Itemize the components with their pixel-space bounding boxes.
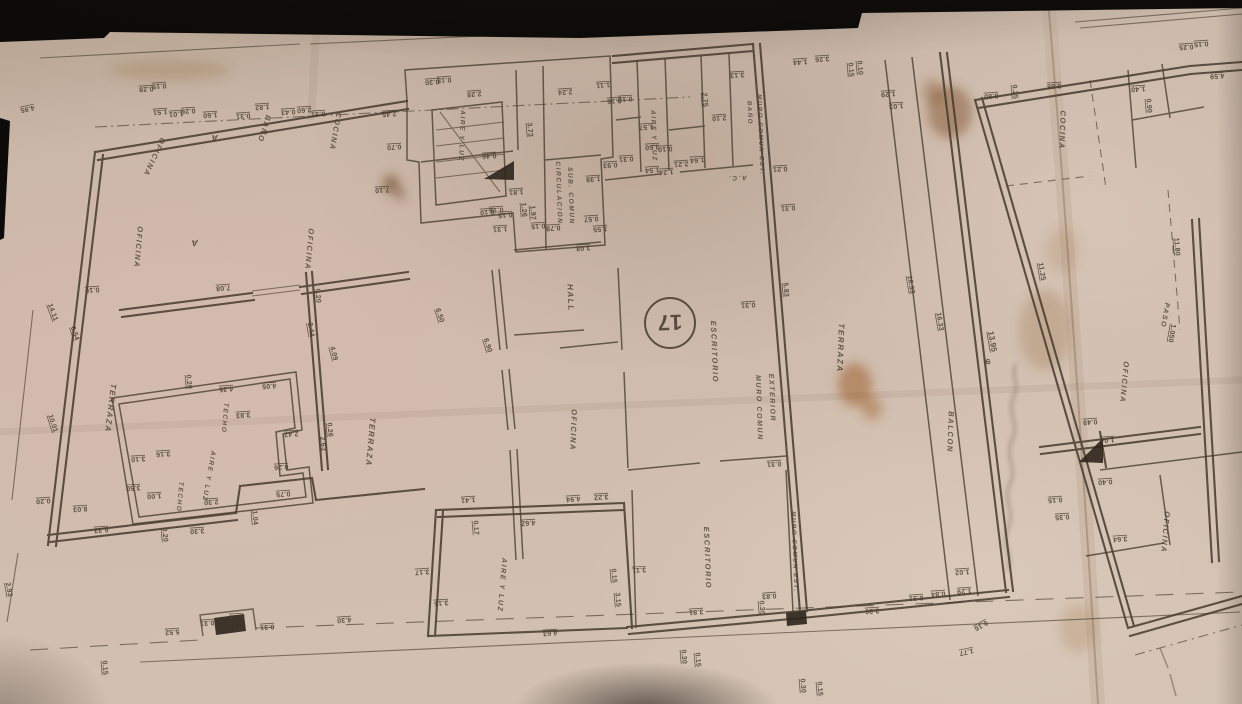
dimension-label: 1.77 — [959, 647, 975, 657]
dimension-label: 1.64 — [690, 156, 705, 164]
dimension-label: 0.17 — [471, 520, 479, 535]
dimension-label: 0.30 — [757, 600, 765, 615]
dimension-label: 2.63 — [318, 436, 326, 451]
dimension-label: 0.93 — [603, 161, 618, 169]
dimension-label: 0.25 — [1179, 43, 1194, 51]
dimension-label: 2.21 — [674, 160, 689, 168]
dimension-label: 0.15 — [693, 652, 701, 667]
dimension-label: 0.90 — [1144, 98, 1152, 113]
dimension-label: 0.16 — [973, 619, 989, 632]
dimension-label: 4.63 — [543, 629, 558, 637]
room-label: A — [190, 238, 199, 248]
dimension-label: 3.44 — [306, 322, 315, 337]
plan-number-badge: 17 — [645, 298, 695, 348]
dimension-label: 0.25 — [1010, 84, 1018, 99]
dimension-label: 14.11 — [46, 303, 59, 322]
dimension-label: 5.83 — [781, 282, 789, 297]
dimension-label: 0.31 — [260, 623, 275, 631]
dimension-label: 3.15 — [613, 592, 621, 607]
room-label: PASO — [1159, 302, 1170, 329]
dimension-label: 0.15 — [609, 568, 617, 583]
room-label: MURO COMUN — [754, 375, 763, 441]
dimension-label: 0.11 — [229, 613, 244, 621]
dimension-label: 6.54 — [69, 326, 80, 342]
dimension-label: 3.10 — [131, 455, 146, 463]
dimension-label: 1.04 — [1100, 436, 1115, 444]
dimension-label: 0.31 — [767, 460, 782, 468]
dimension-label: 16.33 — [905, 275, 915, 294]
dimension-label: 0.26 — [181, 107, 196, 115]
dimension-label: 0.20 — [160, 527, 168, 542]
room-label: ESCRITORIO — [702, 527, 713, 590]
dimension-label: 0.31 — [200, 619, 215, 627]
dimension-label: 13.95 — [986, 330, 999, 353]
dimension-label: 3.50 — [126, 484, 141, 492]
room-label: AIRE Y LUZ — [496, 557, 508, 613]
dimension-label: 0.31 — [619, 155, 634, 163]
plan-number: 17 — [657, 310, 682, 336]
dimension-label: 0.46 — [482, 152, 497, 160]
room-label: COCINA — [328, 111, 344, 151]
dimension-label: 0.20 — [184, 374, 192, 389]
dimension-label: 6.50 — [434, 308, 445, 324]
dimension-label: 0.49 — [1083, 418, 1098, 426]
dimension-label: 1.40 — [1131, 85, 1146, 93]
dimension-label: 1.57 — [639, 123, 654, 131]
dimension-label: 0.20 — [313, 288, 321, 303]
dimension-label: 4.30 — [337, 616, 352, 624]
room-label: BALCON — [945, 411, 955, 453]
dimension-label: 3.81 — [689, 608, 704, 616]
dimension-label: 0.15 — [1048, 496, 1063, 504]
door-sill-hatch-icon — [200, 161, 1103, 636]
room-label: OFICINA — [303, 228, 316, 271]
dimension-label: 0.28 — [139, 85, 154, 93]
dimension-label: 0.30 — [679, 649, 687, 664]
room-label: OFICINA — [1159, 511, 1172, 554]
dimension-label: 0.10 — [855, 60, 863, 75]
room-label: ESCRITORIO — [709, 321, 720, 384]
dimension-label: 1.02 — [955, 568, 970, 576]
dimension-label: 4.95 — [20, 104, 36, 114]
dimension-label: 0.15 — [152, 82, 167, 90]
room-labels: OFICINAABAÑOCOCINAOFICINAAOFICINAAIRE Y … — [103, 94, 1172, 612]
dimension-label: 3.17 — [415, 568, 430, 576]
dimension-label: 0.78 — [546, 224, 561, 232]
dimension-label: 0.80 — [984, 92, 999, 100]
dimension-label: φ — [984, 358, 994, 365]
room-label: A — [210, 133, 219, 143]
dimension-label: 1.26 — [519, 202, 527, 217]
room-label: BAÑO — [746, 101, 754, 125]
room-label: AIRE Y LUZ — [201, 449, 217, 502]
dimension-label: 1.55 — [593, 225, 608, 233]
dimension-label: 2.45 — [382, 110, 397, 118]
dimension-label: 1.82 — [255, 103, 270, 111]
dimension-label: 0.31 — [311, 110, 326, 118]
dimension-label: 1.050 — [1166, 324, 1176, 343]
dimension-label: 0.26 — [325, 422, 333, 437]
dimension-label: 2.60 — [297, 106, 312, 114]
dimension-label: 3.11 — [632, 566, 647, 574]
room-label: OFICINA — [568, 409, 578, 451]
dimension-label: 0.70 — [387, 143, 402, 151]
dimension-label: 2.93 — [4, 582, 13, 597]
dimension-label: 0.35 — [1055, 513, 1070, 521]
dimension-label: 7.08 — [216, 284, 231, 292]
dimension-label: 1.04 — [250, 510, 258, 525]
dimension-label: 4.62 — [521, 519, 536, 527]
dimension-label: 3.15 — [434, 599, 449, 607]
dimension-label: 1.29 — [957, 587, 972, 595]
dimension-label: 7.10 — [375, 186, 390, 194]
dimension-label: 5.52 — [165, 628, 180, 636]
dimension-label: 4.05 — [262, 382, 277, 390]
room-label: CIRCULACION — [554, 161, 563, 224]
dimension-label: 0.83 — [762, 592, 777, 600]
right-wing-walls — [975, 62, 1242, 636]
dimension-label: 1.11 — [596, 81, 611, 89]
dimension-label: 0.31 — [781, 204, 796, 212]
dimension-label: 0.18 — [437, 76, 452, 84]
dimension-label: 3.08 — [576, 244, 591, 252]
dimension-label: 3.88 — [1047, 82, 1062, 90]
dimension-label: 3.13 — [730, 71, 745, 79]
room-label: HALL — [566, 284, 576, 312]
floor-plan-drawing: 17 OFICINAABAÑOCOCINAOFICINAAOFICINAAIRE… — [0, 0, 1242, 704]
dimension-label: 6.33 — [94, 526, 109, 534]
room-label: AIRE Y LUZ — [457, 109, 466, 162]
dimension-label: 2.42 — [284, 430, 299, 438]
dimension-label: 0.43 — [281, 108, 296, 116]
dimension-label: 11.25 — [1036, 262, 1046, 281]
dimension-label: 1.97 — [528, 205, 536, 220]
dimension-label: 0.40 — [1098, 478, 1113, 486]
dimension-label: 0.31 — [741, 301, 756, 309]
dimension-label: 0.57 — [584, 215, 599, 223]
dimension-label: 0.30 — [798, 678, 806, 693]
stair-core-walls — [405, 54, 753, 252]
dimension-label: 0.15 — [100, 660, 108, 675]
room-label: TERRAZA — [364, 417, 377, 467]
dimension-label: 2.75 — [700, 92, 708, 107]
dimension-label: 0.15 — [815, 681, 823, 696]
dimension-label: 4.59 — [1210, 72, 1225, 80]
dimension-label: 2.10 — [712, 114, 727, 122]
dimension-label: 0.20 — [36, 497, 51, 505]
dimension-label: 3.22 — [594, 493, 609, 501]
dimension-label: 2.30 — [204, 498, 219, 506]
room-label: SUB. COMUN — [566, 167, 575, 225]
dimension-label: 1.03 — [889, 102, 904, 110]
dimension-label: 3.73 — [525, 122, 533, 137]
room-label: TERRAZA — [835, 323, 846, 373]
dimension-label: 1.24 — [659, 168, 674, 176]
dimension-label: 4.09 — [328, 346, 338, 362]
dimension-label: 0.31 — [236, 112, 251, 120]
dimension-label: 1.54 — [645, 166, 660, 174]
dimension-label: 3.30 — [190, 527, 205, 535]
dimension-label: 0.10 — [85, 286, 100, 294]
room-label: AIRE Y LUZ — [649, 109, 658, 162]
dimension-label: 0.15 — [846, 62, 854, 77]
dimension-label: 3.16 — [156, 450, 171, 458]
dimension-label: 1.38 — [586, 175, 601, 183]
dimension-label: 1.00 — [147, 492, 162, 500]
dimension-label: 1.31 — [493, 225, 508, 233]
room-label: TECHO — [175, 482, 185, 513]
dimension-label: 1.81 — [509, 188, 524, 196]
dimension-label: 0.75 — [276, 490, 291, 498]
dimension-label: 1.60 — [203, 111, 218, 119]
room-label: TECHO — [220, 403, 230, 434]
dimension-label: 2.28 — [467, 90, 482, 98]
dimension-label: 1.44 — [793, 58, 808, 66]
dimension-label: 0.15 — [498, 211, 513, 219]
dimension-label: 3.26 — [815, 55, 830, 63]
dimension-label: 1.51 — [153, 108, 168, 116]
room-label: A.C. — [727, 174, 748, 182]
dimension-label: 8.03 — [73, 505, 88, 513]
dimension-label: 3.26 — [865, 607, 880, 615]
dimension-label: 3.50 — [645, 143, 660, 151]
dimension-label: 0.15 — [531, 222, 546, 230]
floor-plan-photo: 17 OFICINAABAÑOCOCINAOFICINAAOFICINAAIRE… — [0, 0, 1242, 704]
room-label: OFICINA — [132, 226, 145, 269]
dimension-label: 1.41 — [461, 496, 476, 504]
dimension-label: 3.64 — [1113, 535, 1128, 543]
dimension-label: 0.10 — [618, 95, 633, 103]
room-label: COCINA — [1057, 110, 1067, 149]
dimension-label: 4.94 — [566, 495, 581, 503]
room-label: EXTERIOR — [767, 374, 776, 423]
dimension-label: 0.15 — [1194, 40, 1209, 48]
dimension-label: 0.21 — [773, 165, 788, 173]
room-label: MURO COMUN EST. — [756, 94, 765, 175]
dimension-label: 0.84 — [931, 590, 946, 598]
dimension-label: 0.31 — [909, 594, 924, 602]
dimension-label: 3.83 — [236, 411, 251, 419]
dimension-label: 6.90 — [482, 338, 493, 354]
dimension-label: 4.25 — [219, 385, 234, 393]
dimension-label: 2.24 — [558, 88, 573, 96]
dimension-label: 1.29 — [881, 90, 896, 98]
dimension-label: 0.10 — [658, 145, 673, 153]
dimension-label: 0.26 — [274, 463, 289, 471]
room-label: OFICINA — [1118, 361, 1131, 404]
